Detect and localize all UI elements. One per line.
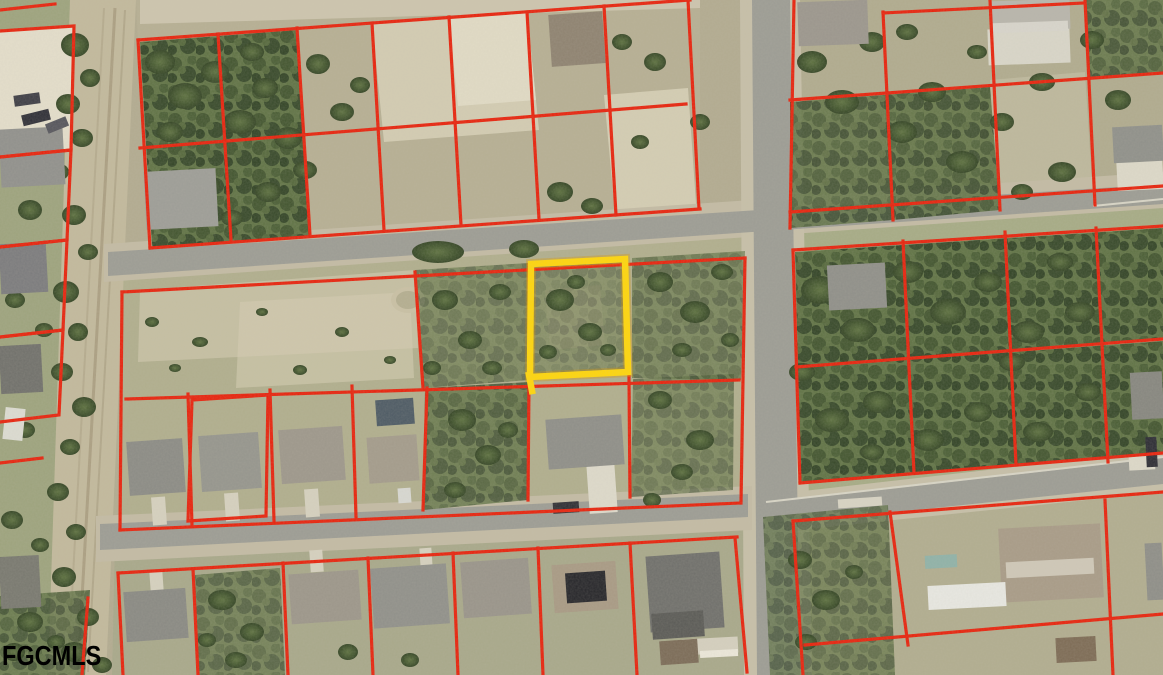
photo-grain-overlay [0,0,1163,675]
mls-aerial-photo[interactable]: FGCMLS [0,0,1163,675]
watermark-text: FGCMLS [2,642,101,670]
aerial-map-svg [0,0,1163,675]
